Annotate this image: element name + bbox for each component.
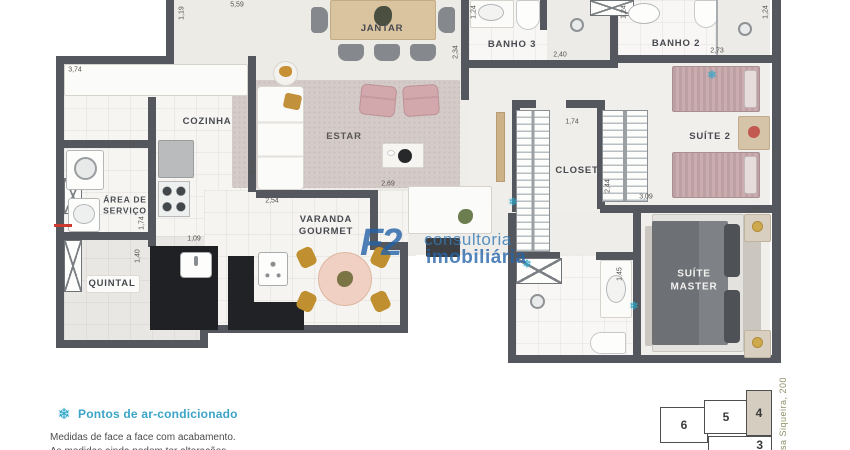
- washer-door-icon: [74, 157, 97, 180]
- dimension-label: 5,59: [230, 2, 244, 9]
- ac-point-snowflake-icon: ❄: [707, 69, 716, 82]
- kitchen-top-counter: [64, 64, 248, 96]
- wall-segment: [56, 232, 148, 240]
- dimension-label: 1,19: [179, 6, 186, 20]
- sofa-throw-pillow: [283, 92, 303, 110]
- grill: [258, 252, 288, 286]
- dimension-label: 1,24: [621, 5, 628, 19]
- master-bed-pillow: [724, 224, 740, 277]
- dining-chair: [311, 7, 328, 33]
- wall-segment: [508, 355, 781, 363]
- dimension-label: 3,74: [68, 67, 82, 74]
- shower-head-icon: [570, 18, 584, 32]
- bath3-sink-basin: [478, 4, 504, 21]
- master-shower-head-icon: [530, 294, 545, 309]
- master-toilet: [590, 332, 626, 354]
- bath3-toilet: [516, 0, 540, 30]
- room-label-varanda-gourmet: VARANDA GOURMET: [299, 214, 353, 238]
- stove-cooktop: [158, 181, 190, 217]
- wall-segment: [461, 60, 618, 68]
- keyplan-unit-4-highlighted: 4: [746, 390, 772, 436]
- entry-door: [496, 112, 505, 182]
- keyplan-unit-number: 4: [756, 406, 763, 420]
- dimension-label: 2,73: [710, 48, 724, 55]
- dimension-label: 2,54: [265, 198, 279, 205]
- dimension-label: 4,18: [250, 160, 257, 174]
- dimension-label: 2,69: [381, 181, 395, 188]
- bath2-sink-basin: [628, 3, 660, 24]
- wall-segment: [56, 56, 64, 348]
- keyplan-unit-number: 5: [723, 410, 730, 424]
- wall-segment: [633, 213, 641, 363]
- master-bed-pillow: [724, 290, 740, 343]
- floor-plan-canvas: JANTAR BANHO 3 BANHO 2 COZINHA ESTAR SUÍ…: [0, 0, 850, 450]
- suite2-bed-pillow: [744, 70, 757, 108]
- watermark-logo: F2: [360, 222, 400, 265]
- dimension-label: 1,45: [617, 267, 624, 281]
- nightstand-lamp-icon: [752, 337, 763, 348]
- room-label-estar: ESTAR: [326, 131, 362, 143]
- closet-wardrobe: [516, 110, 550, 252]
- nightstand-lamp-icon: [752, 221, 763, 232]
- room-label-suite2: SUÍTE 2: [689, 131, 731, 143]
- dimension-label: 1,24: [471, 5, 478, 19]
- dimension-label: 1,74: [565, 119, 579, 126]
- wall-segment: [596, 252, 641, 260]
- dimension-label: 2,34: [453, 45, 460, 59]
- fridge: [158, 140, 194, 178]
- side-table-decor: [279, 66, 292, 77]
- wall-segment: [400, 242, 408, 333]
- room-label-banho3: BANHO 3: [488, 39, 536, 51]
- dining-chair: [438, 7, 455, 33]
- shower-head-icon: [738, 22, 752, 36]
- wall-segment: [566, 100, 605, 108]
- bath2-toilet: [694, 0, 718, 28]
- kitchen-faucet: [194, 256, 198, 266]
- dimension-label: 3,09: [639, 194, 653, 201]
- keyplan-unit-number: 3: [756, 438, 763, 450]
- legend-note-1: Medidas de face a face com acabamento.: [50, 432, 236, 443]
- red-marker: [54, 224, 72, 227]
- suite2-bed-pillow: [744, 156, 757, 194]
- room-label-cozinha: COZINHA: [183, 116, 232, 128]
- dimension-label: 3,18: [746, 207, 760, 214]
- ac-point-snowflake-icon: ❄: [508, 196, 517, 209]
- dimension-label: 1,62: [123, 141, 137, 148]
- legend-snowflake-icon: ❄: [58, 405, 71, 423]
- room-label-banho2: BANHO 2: [652, 38, 700, 50]
- coffee-table-bowl: [398, 149, 412, 163]
- dimension-label: 1,74: [139, 216, 146, 230]
- keyplan-unit-6: 6: [660, 407, 708, 443]
- dimension-label: 2,40: [553, 52, 567, 59]
- dining-chair: [338, 44, 364, 61]
- room-label-jantar: JANTAR: [361, 23, 404, 35]
- gourmet-counter: [228, 302, 304, 330]
- sideboard: [408, 186, 492, 234]
- room-label-closet: CLOSET: [555, 165, 598, 177]
- ac-condenser-unit: [64, 240, 82, 292]
- wall-segment: [461, 0, 469, 100]
- keyplan-street-label: sa Siqueira, 200: [778, 386, 788, 450]
- watermark-brand-line2: imobiliária: [426, 247, 527, 269]
- dimension-label: 1,24: [763, 5, 770, 19]
- wall-segment: [166, 0, 174, 64]
- room-label-area-servico: ÁREA DE SERVIÇO: [103, 194, 147, 215]
- dining-chair: [374, 44, 400, 61]
- dimension-label: 1,40: [135, 249, 142, 263]
- armchair: [358, 83, 397, 118]
- keyplan-unit-3: 3: [708, 436, 772, 450]
- wall-segment: [540, 0, 547, 30]
- keyplan-unit-5: 5: [704, 400, 748, 434]
- wall-segment: [772, 0, 781, 363]
- wall-segment: [56, 340, 204, 348]
- keyplan-unit-number: 6: [681, 418, 688, 432]
- coffee-table-dish: [387, 150, 395, 156]
- legend-ac-title: Pontos de ar-condicionado: [78, 407, 238, 421]
- room-label-quintal: QUINTAL: [88, 278, 135, 290]
- wall-segment: [148, 97, 156, 247]
- armchair: [402, 84, 440, 117]
- wall-segment: [512, 100, 536, 108]
- tank-basin: [73, 204, 95, 224]
- dining-chair: [410, 44, 436, 61]
- wall-segment: [618, 55, 772, 63]
- ac-point-snowflake-icon: ❄: [629, 300, 638, 313]
- legend-note-2: As medidas ainda podem ter alterações.: [50, 446, 229, 450]
- dimension-label: 1,09: [187, 236, 201, 243]
- room-label-suite-master: SUÍTE MASTER: [670, 269, 717, 294]
- dimension-label: 2,44: [605, 179, 612, 193]
- wall-segment: [56, 56, 174, 64]
